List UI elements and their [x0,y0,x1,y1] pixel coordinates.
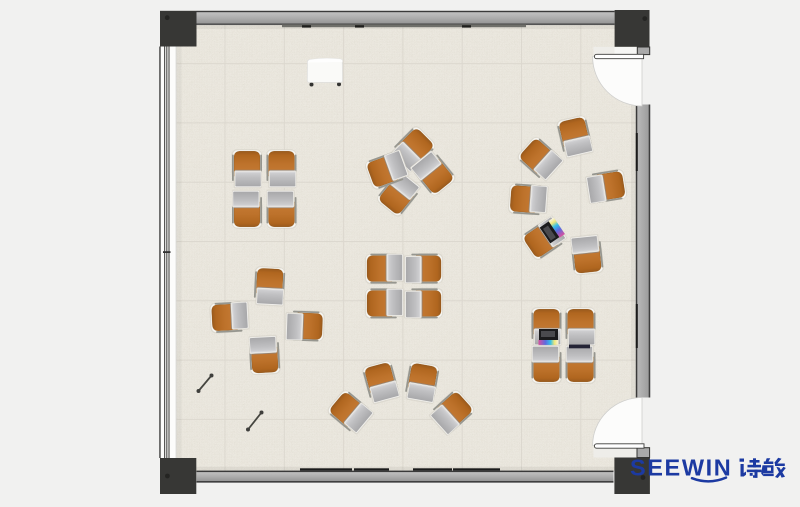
svg-text:SEEWIN: SEEWIN [630,455,732,481]
